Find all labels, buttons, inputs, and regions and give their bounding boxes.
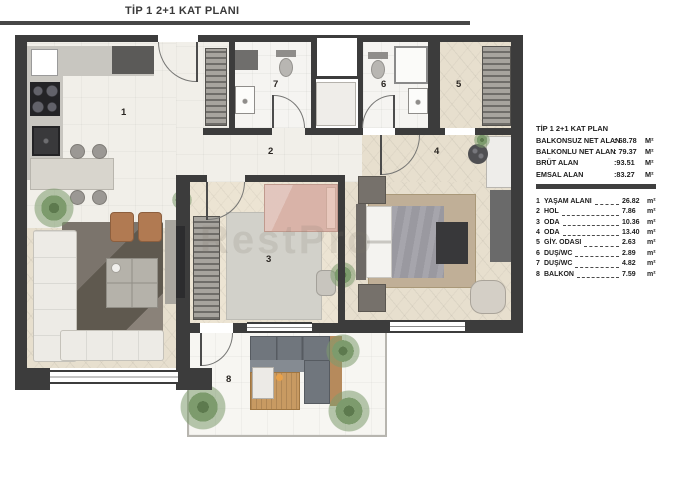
bar-chair — [92, 144, 107, 159]
wall-oda3-bottom-1 — [176, 323, 200, 333]
duct-radiator — [205, 48, 227, 126]
legend-panel: TİP 1 2+1 KAT PLAN BALKONSUZ NET ALAN: 6… — [536, 124, 660, 280]
legend-area-rows: BALKONSUZ NET ALAN: 68.78M²BALKONLU NET … — [536, 135, 660, 180]
legend-room-row: 3ODA10.36m² — [536, 218, 660, 228]
plant — [34, 188, 74, 228]
room-label-4: 4 — [434, 146, 439, 157]
room-label-1: 1 — [121, 107, 126, 118]
cooktop — [30, 82, 60, 116]
room-unit: m² — [647, 218, 660, 228]
kitchen-sink — [32, 126, 60, 156]
window-oda3 — [247, 322, 312, 333]
room-label: YAŞAM ALANI — [544, 197, 595, 207]
bedroom-dresser — [486, 136, 512, 188]
wall-hall-1 — [203, 128, 272, 135]
area-value: : 79.37 — [614, 146, 645, 157]
wall-top-right — [198, 35, 523, 42]
area-value: : 68.78 — [614, 135, 645, 146]
legend-area-row: EMSAL ALAN:83.27M² — [536, 169, 660, 180]
legend-room-row: 5GİY. ODASI2.63m² — [536, 238, 660, 248]
bar-chair — [92, 190, 107, 205]
wall-bedroom-bottom-2 — [465, 320, 523, 333]
window-shaft — [314, 35, 360, 79]
area-value: :83.27 — [614, 169, 645, 180]
legend-room-row: 8BALKON7.59m² — [536, 270, 660, 280]
wall-hall-3 — [395, 128, 445, 135]
window-living — [50, 370, 178, 384]
wall-wc7-left — [229, 42, 235, 135]
room-value: 2.89 — [622, 249, 647, 259]
page-title: TİP 1 2+1 KAT PLANI — [125, 5, 239, 17]
plant — [180, 384, 226, 430]
area-label: EMSAL ALAN — [536, 169, 614, 180]
wall-left — [15, 35, 27, 390]
room-label: HOL — [544, 207, 562, 217]
room-label-2: 2 — [268, 146, 273, 157]
tv-panel — [176, 226, 185, 298]
legend-area-row: BALKONSUZ NET ALAN: 68.78M² — [536, 135, 660, 146]
room-label: ODA — [544, 218, 563, 228]
room-value: 26.82 — [622, 197, 647, 207]
dotted-leader — [595, 204, 619, 205]
room-num: 6 — [536, 249, 544, 259]
wall-oda3-top-1 — [176, 175, 207, 182]
area-unit: M² — [645, 157, 660, 168]
room-unit: m² — [647, 270, 660, 280]
bedroom-desk-unit — [490, 190, 512, 262]
room-label-8: 8 — [226, 374, 231, 385]
bedroom-chair — [470, 280, 506, 314]
room-label: DUŞ/WC — [544, 249, 575, 259]
header-rule — [0, 21, 470, 25]
wc6-door-leaf — [393, 95, 395, 128]
room-label: DUŞ/WC — [544, 259, 575, 269]
room-unit: m² — [647, 207, 660, 217]
armchair — [110, 212, 134, 242]
legend-area-row: BALKONLU NET ALAN: 79.37M² — [536, 146, 660, 157]
wall-pier — [15, 368, 50, 390]
wc7-toilet — [279, 58, 293, 77]
bed-throw — [436, 222, 468, 264]
room-unit: m² — [647, 238, 660, 248]
wall-bedroom-bottom-1 — [345, 320, 390, 333]
legend-room-row: 4ODA13.40m² — [536, 228, 660, 238]
wc6-shower — [394, 46, 428, 84]
area-value: :93.51 — [614, 157, 645, 168]
armchair — [138, 212, 162, 242]
dotted-leader — [584, 246, 619, 247]
legend-room-row: 6DUŞ/WC2.89m² — [536, 249, 660, 259]
candle — [276, 374, 283, 381]
room-num: 5 — [536, 238, 544, 248]
wall-dressing-bottom — [475, 128, 511, 135]
wall-hall-2 — [305, 128, 362, 135]
room-unit: m² — [647, 249, 660, 259]
room-unit: m² — [647, 197, 660, 207]
area-unit: M² — [645, 169, 660, 180]
dotted-leader — [575, 267, 619, 268]
floor-plan-page: TİP 1 2+1 KAT PLANI — [0, 0, 679, 480]
room-num: 2 — [536, 207, 544, 217]
room-label: GİY. ODASI — [544, 238, 584, 248]
dotted-leader — [575, 256, 619, 257]
nightstand — [358, 284, 386, 312]
wall-wc6-right — [428, 42, 440, 135]
wc7-shower — [316, 82, 356, 126]
legend-room-row: 1YAŞAM ALANI26.82m² — [536, 197, 660, 207]
room-label-7: 7 — [273, 79, 278, 90]
legend-area-row: BRÜT ALAN:93.51M² — [536, 157, 660, 168]
watermark: RestPro — [200, 218, 374, 263]
room-num: 8 — [536, 270, 544, 280]
area-label: BRÜT ALAN — [536, 157, 614, 168]
wc6-toilet — [371, 60, 385, 79]
room-num: 1 — [536, 197, 544, 207]
room-value: 7.59 — [622, 270, 647, 280]
area-label: BALKONSUZ NET ALAN — [536, 135, 614, 146]
legend-room-row: 7DUŞ/WC4.82m² — [536, 259, 660, 269]
room-value: 10.36 — [622, 218, 647, 228]
room-value: 7.86 — [622, 207, 647, 217]
wc7-toilet-tank — [276, 50, 296, 57]
area-unit: M² — [645, 146, 660, 157]
room-label: BALKON — [544, 270, 577, 280]
dotted-leader — [563, 235, 619, 236]
legend-room-rows: 1YAŞAM ALANI26.82m²2HOL7.86m²3ODA10.36m²… — [536, 197, 660, 280]
wall-oda3-bottom-2 — [233, 323, 247, 333]
area-unit: M² — [645, 135, 660, 146]
room-label-3: 3 — [266, 254, 271, 265]
kitchen-cabinet — [112, 46, 154, 74]
room-unit: m² — [647, 228, 660, 238]
room-label: ODA — [544, 228, 563, 238]
kitchen-island — [30, 158, 114, 190]
room-label-5: 5 — [456, 79, 461, 90]
wall-oda3-bottom-3 — [312, 323, 345, 333]
table-decor — [111, 263, 121, 273]
wc7-sink — [235, 86, 255, 114]
dotted-leader — [577, 277, 619, 278]
wardrobe-dressing — [482, 46, 511, 126]
bar-chair — [70, 144, 85, 159]
outdoor-chaise — [304, 360, 330, 404]
plant — [328, 390, 370, 432]
outdoor-tray — [252, 367, 274, 399]
sofa-bottom — [60, 330, 164, 361]
nightstand — [358, 176, 386, 204]
room-value: 2.63 — [622, 238, 647, 248]
room-label-6: 6 — [381, 79, 386, 90]
room-value: 13.40 — [622, 228, 647, 238]
outdoor-sofa-back — [250, 336, 330, 362]
legend-title: TİP 1 2+1 KAT PLAN — [536, 124, 660, 133]
legend-rule — [536, 184, 656, 189]
dotted-leader — [563, 225, 619, 226]
wc7-cabinet — [234, 50, 258, 70]
legend-room-row: 2HOL7.86m² — [536, 207, 660, 217]
dotted-leader — [562, 215, 619, 216]
room-num: 7 — [536, 259, 544, 269]
wc6-sink — [408, 88, 428, 114]
fridge — [31, 49, 58, 76]
wall-oda3-top-2 — [245, 175, 345, 182]
entrance-door-leaf — [196, 42, 198, 82]
room-unit: m² — [647, 259, 660, 269]
room-num: 3 — [536, 218, 544, 228]
room-num: 4 — [536, 228, 544, 238]
plant — [326, 334, 360, 368]
wc6-toilet-tank — [368, 52, 388, 59]
room-value: 4.82 — [622, 259, 647, 269]
window-bedroom — [390, 320, 465, 333]
wall-right — [511, 35, 523, 333]
wall-top-left — [15, 35, 158, 42]
area-label: BALKONLU NET ALAN — [536, 146, 614, 157]
